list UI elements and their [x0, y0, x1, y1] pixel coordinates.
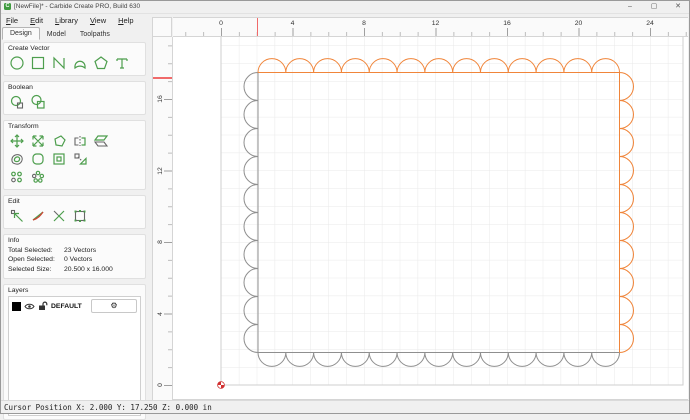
tab-bar: Design Model Toolpaths	[2, 27, 117, 40]
left-panel: Create Vector Boolean	[0, 40, 150, 400]
info-value: 23 Vectors	[64, 247, 96, 254]
boolean-union-icon	[9, 94, 25, 110]
shear-icon	[93, 133, 109, 149]
menu-edit[interactable]: Edit	[24, 14, 49, 27]
cursor-position-text: Cursor Position X: 2.000 Y: 17.250 Z: 0.…	[4, 403, 212, 412]
circular-array-tool[interactable]	[29, 168, 47, 185]
info-value: 0 Vectors	[64, 256, 92, 263]
rotate-icon	[51, 133, 67, 149]
polygon-icon	[93, 55, 109, 71]
edit-rectangle-icon	[72, 208, 88, 224]
curve-icon	[72, 55, 88, 71]
text-icon	[114, 55, 130, 71]
app-icon: C	[4, 3, 11, 10]
window-title: [NewFile]* - Carbide Create PRO, Build 6…	[14, 3, 140, 10]
curve-tool[interactable]	[71, 54, 89, 71]
fillet-icon	[30, 151, 46, 167]
ruler-label: 0	[213, 20, 229, 27]
ruler-label: 4	[285, 20, 301, 27]
ruler-corner	[152, 17, 172, 37]
tab-design[interactable]: Design	[2, 27, 40, 40]
canvas-drawing	[173, 37, 688, 400]
scale-tool[interactable]	[29, 132, 47, 149]
info-label: Total Selected:	[8, 247, 64, 254]
polyline-tool[interactable]	[50, 54, 68, 71]
rectangle-tool[interactable]	[29, 54, 47, 71]
info-value: 20.500 x 16.000	[64, 266, 113, 273]
ruler-label: 12	[157, 164, 165, 178]
menu-view[interactable]: View	[84, 14, 112, 27]
ruler-label: 8	[157, 235, 165, 249]
polygon-tool[interactable]	[92, 54, 110, 71]
ruler-label: 8	[356, 20, 372, 27]
section-title: Edit	[8, 198, 141, 205]
info-open-selected: Open Selected: 0 Vectors	[8, 256, 141, 263]
tab-toolpaths[interactable]: Toolpaths	[73, 29, 117, 40]
unlock-icon[interactable]	[38, 301, 48, 311]
offset-path-icon	[51, 151, 67, 167]
status-bar: Cursor Position X: 2.000 Y: 17.250 Z: 0.…	[0, 400, 690, 414]
ruler-label: 20	[571, 20, 587, 27]
origin-marker	[218, 382, 225, 389]
boolean-union-tool[interactable]	[8, 93, 26, 110]
title-bar: C [NewFile]* - Carbide Create PRO, Build…	[0, 0, 690, 14]
node-edit-icon	[9, 208, 25, 224]
section-title: Transform	[8, 123, 141, 130]
info-label: Selected Size:	[8, 266, 64, 273]
move-icon	[9, 133, 25, 149]
move-tool[interactable]	[8, 132, 26, 149]
info-section: Info Total Selected: 23 Vectors Open Sel…	[3, 234, 146, 279]
curve-edit-icon	[30, 208, 46, 224]
offset-vectors-icon	[9, 151, 25, 167]
linear-array-tool[interactable]	[8, 168, 26, 185]
info-total-selected: Total Selected: 23 Vectors	[8, 247, 141, 254]
linear-array-icon	[9, 169, 25, 185]
layer-color-swatch[interactable]	[12, 302, 21, 311]
design-canvas[interactable]	[173, 37, 688, 400]
offset-vectors-tool[interactable]	[8, 150, 26, 167]
mirror-icon	[72, 133, 88, 149]
polyline-icon	[51, 55, 67, 71]
section-title: Boolean	[8, 84, 141, 91]
scale-proportions-tool[interactable]	[71, 150, 89, 167]
scale-proportions-icon	[72, 151, 88, 167]
circle-tool[interactable]	[8, 54, 26, 71]
circular-array-icon	[30, 169, 46, 185]
minimize-icon[interactable]: –	[618, 0, 642, 13]
edit-section: Edit	[3, 195, 146, 229]
close-icon[interactable]: ✕	[666, 0, 690, 13]
menu-bar: File Edit Library View Help	[0, 13, 140, 27]
trim-vectors-tool[interactable]	[50, 207, 68, 224]
gear-icon: ⚙	[110, 301, 117, 310]
layer-name: DEFAULT	[51, 303, 82, 310]
circle-icon	[9, 55, 25, 71]
info-selected-size: Selected Size: 20.500 x 16.000	[8, 266, 141, 273]
shear-tool[interactable]	[92, 132, 110, 149]
curve-edit-tool[interactable]	[29, 207, 47, 224]
fillet-tool[interactable]	[29, 150, 47, 167]
tab-model[interactable]: Model	[40, 29, 73, 40]
section-title: Layers	[8, 287, 141, 294]
ruler-label: 16	[157, 92, 165, 106]
mirror-tool[interactable]	[71, 132, 89, 149]
ruler-label: 4	[157, 307, 165, 321]
boolean-section: Boolean	[3, 81, 146, 115]
create-vector-section: Create Vector	[3, 42, 146, 76]
transform-section: Transform	[3, 120, 146, 190]
ruler-label: 0	[157, 378, 165, 392]
ruler-vertical: 16 12 8 4 0	[152, 37, 173, 400]
rectangle-icon	[30, 55, 46, 71]
text-tool[interactable]	[113, 54, 131, 71]
edit-rectangle-tool[interactable]	[71, 207, 89, 224]
scale-icon	[30, 133, 46, 149]
section-title: Info	[8, 237, 141, 244]
menu-file[interactable]: File	[0, 14, 24, 27]
menu-library[interactable]: Library	[49, 14, 84, 27]
node-edit-tool[interactable]	[8, 207, 26, 224]
ruler-label: 16	[499, 20, 515, 27]
ruler-label: 24	[642, 20, 658, 27]
info-label: Open Selected:	[8, 256, 64, 263]
layer-settings-button[interactable]: ⚙	[91, 299, 137, 313]
section-title: Create Vector	[8, 45, 141, 52]
ruler-horizontal: 0 4 8 12 16 20 24	[173, 17, 688, 37]
stock-grid	[221, 37, 683, 385]
boolean-subtract-icon	[30, 94, 46, 110]
window-controls: – ▢ ✕	[618, 0, 690, 13]
offset-path-tool[interactable]	[50, 150, 68, 167]
ruler-label: 12	[428, 20, 444, 27]
layer-row-default[interactable]: DEFAULT ⚙	[9, 297, 140, 315]
boolean-subtract-tool[interactable]	[29, 93, 47, 110]
cursor-y-marker	[153, 77, 172, 79]
trim-vectors-icon	[51, 208, 67, 224]
rotate-tool[interactable]	[50, 132, 68, 149]
layer-list: DEFAULT ⚙	[8, 296, 141, 416]
maximize-icon[interactable]: ▢	[642, 0, 666, 13]
cursor-x-marker	[257, 18, 259, 36]
eye-icon[interactable]	[24, 302, 35, 311]
menu-help[interactable]: Help	[112, 14, 139, 27]
